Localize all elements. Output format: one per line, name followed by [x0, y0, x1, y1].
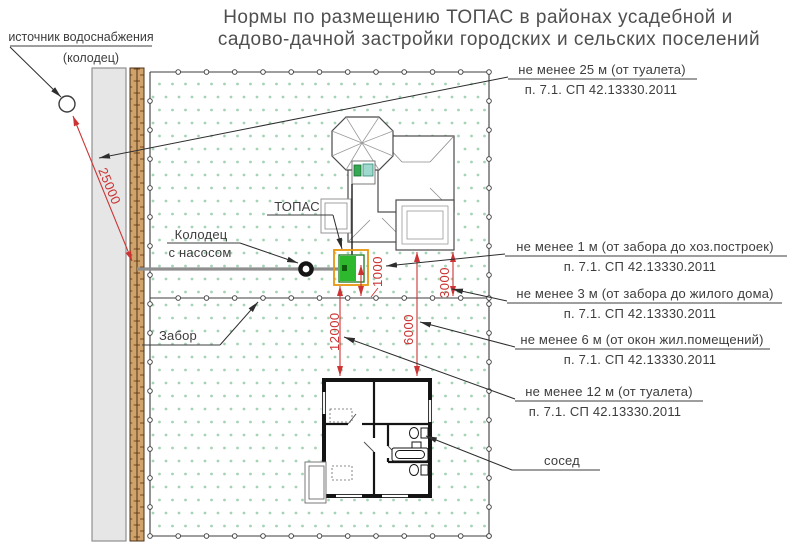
- bath-fixture: [363, 164, 373, 176]
- topas-unit: [334, 250, 368, 285]
- house-wing: [396, 200, 454, 250]
- svg-text:Колодец: Колодец: [175, 227, 228, 242]
- site-plan-diagram: 25000 1000 3000 6000 12000 Нормы по разм…: [0, 0, 790, 549]
- requirement-3m: не менее 3 м (от забора до жилого дома) …: [507, 286, 782, 321]
- neighbor-label: сосед: [512, 453, 600, 470]
- svg-text:(колодец): (колодец): [63, 51, 119, 65]
- svg-text:Забор: Забор: [159, 328, 197, 343]
- svg-text:не менее 12 м (от туалета): не менее 12 м (от туалета): [525, 384, 693, 399]
- title-block: Нормы по размещению ТОПАС в районах усад…: [218, 7, 760, 50]
- svg-text:сосед: сосед: [544, 453, 580, 468]
- toilet-fixture: [354, 165, 361, 176]
- svg-text:с насосом: с насосом: [168, 245, 231, 260]
- svg-text:не менее 6 м (от окон жил.поме: не менее 6 м (от окон жил.помещений): [520, 332, 763, 347]
- title-line1: Нормы по размещению ТОПАС в районах усад…: [223, 7, 733, 28]
- svg-text:п. 7.1. СП 42.13330.2011: п. 7.1. СП 42.13330.2011: [564, 306, 717, 321]
- neighbor-house: [305, 380, 433, 503]
- requirement-25m: не менее 25 м (от туалета) п. 7.1. СП 42…: [508, 62, 697, 97]
- wooden-fence-strip: [130, 68, 144, 541]
- svg-text:п. 7.1. СП 42.13330.2011: п. 7.1. СП 42.13330.2011: [564, 352, 717, 367]
- dim-text-1000: 1000: [370, 256, 385, 287]
- title-line2: садово-дачной застройки городских и сель…: [218, 29, 760, 50]
- water-source-well: [59, 96, 75, 112]
- requirement-6m: не менее 6 м (от окон жил.помещений) п. …: [515, 332, 770, 367]
- dim-text-6000: 6000: [401, 314, 416, 345]
- svg-text:п. 7.1. СП 42.13330.2011: п. 7.1. СП 42.13330.2011: [525, 82, 678, 97]
- pump-well: [300, 263, 311, 274]
- neighbor-porch: [305, 462, 326, 503]
- water-source-label: источник водоснабжения (колодец): [8, 30, 153, 65]
- svg-text:источник водоснабжения: источник водоснабжения: [8, 30, 153, 44]
- svg-text:п. 7.1. СП 42.13330.2011: п. 7.1. СП 42.13330.2011: [529, 404, 682, 419]
- dim-text-3000: 3000: [437, 267, 452, 298]
- street-road-strip: [92, 68, 126, 541]
- requirement-12m: не менее 12 м (от туалета) п. 7.1. СП 42…: [515, 384, 703, 419]
- svg-text:не менее 1 м (от забора до хоз: не менее 1 м (от забора до хоз.построек): [516, 239, 773, 254]
- svg-text:не менее 25 м (от туалета): не менее 25 м (от туалета): [518, 62, 686, 77]
- svg-text:не менее 3 м (от забора до жил: не менее 3 м (от забора до жилого дома): [516, 286, 773, 301]
- svg-text:п. 7.1. СП 42.13330.2011: п. 7.1. СП 42.13330.2011: [564, 259, 717, 274]
- dim-text-12000: 12000: [327, 312, 342, 351]
- requirement-1m: не менее 1 м (от забора до хоз.построек)…: [505, 239, 787, 274]
- svg-text:ТОПАС: ТОПАС: [274, 199, 320, 214]
